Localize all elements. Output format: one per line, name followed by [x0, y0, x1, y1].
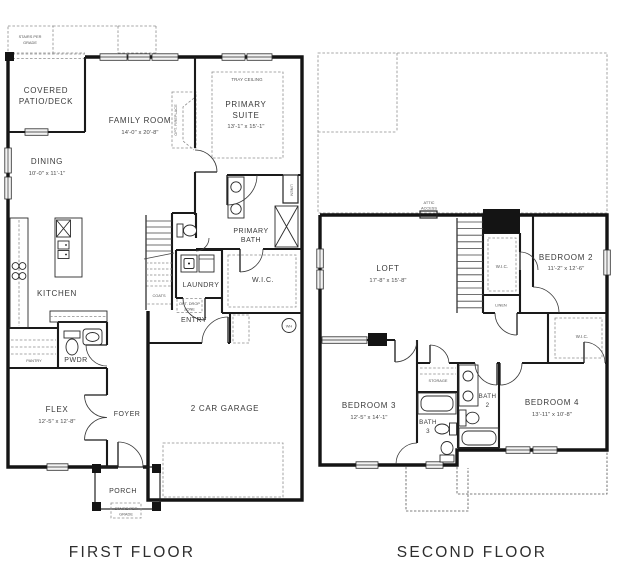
window [5, 177, 12, 199]
label-primary-suite: SUITE [232, 111, 259, 120]
label-loft-dims: 17'-8" x 15'-8" [369, 278, 406, 284]
toilet-icon [440, 442, 454, 463]
front-door [118, 442, 143, 467]
label-bath3: BATH [419, 419, 437, 426]
label-foyer: FOYER [114, 411, 141, 418]
floor-plan-sheet: STAIRS PER GRADE COVERED PATIO/DECK FAMI… [0, 0, 617, 582]
label-primary-suite: PRIMARY [225, 100, 266, 109]
sf-stairs [457, 218, 483, 313]
toilet-icon [459, 410, 479, 426]
door [520, 252, 538, 270]
label-bath2: 2 [486, 402, 490, 409]
window [222, 54, 245, 61]
label-opt-drop-zone: ZONE [184, 307, 195, 312]
label-wh: WH [286, 324, 293, 329]
label-storage: STORAGE [429, 378, 448, 383]
toilet-icon [64, 331, 80, 355]
window [100, 54, 127, 61]
label-garage: 2 CAR GARAGE [191, 404, 259, 413]
ff-bath-fixtures [64, 177, 298, 355]
label-entry: ENTRY [181, 317, 207, 324]
double-vanity [228, 177, 244, 218]
label-bedroom3: BEDROOM 3 [342, 401, 396, 410]
door [396, 443, 417, 464]
label-stairs-per-grade: GRADE [23, 40, 37, 45]
window [25, 129, 48, 136]
door [584, 342, 605, 363]
label-opt-drop-zone: OPT. DROP [179, 301, 200, 306]
label-kitchen: KITCHEN [37, 289, 77, 298]
first-floor-plan: STAIRS PER GRADE COVERED PATIO/DECK FAMI… [5, 26, 302, 561]
tub-icon [418, 393, 456, 414]
shower-icon [275, 206, 298, 247]
ff-labels: STAIRS PER GRADE COVERED PATIO/DECK FAMI… [19, 34, 295, 561]
label-attic-access: ACCESS [421, 206, 437, 211]
label-pwdr: PWDR [64, 357, 87, 364]
door [195, 150, 217, 172]
label-porch: PORCH [109, 488, 137, 495]
label-flex: FLEX [46, 405, 69, 414]
roof-outline [318, 53, 607, 213]
door [395, 340, 417, 362]
window [604, 250, 611, 275]
label-bedroom4-dims: 13'-11" x 10'-8" [532, 412, 572, 418]
first-floor-title: FIRST FLOOR [69, 544, 195, 561]
corner-post [5, 52, 14, 61]
toilet-icon [177, 224, 197, 237]
window [506, 447, 530, 454]
label-bath2: BATH [479, 393, 497, 400]
second-floor-plan: ATTIC ACCESS LOFT 17'-8" x 15'-8" W.I.C.… [317, 53, 611, 561]
label-tray-ceiling: TRAY CEILING [231, 77, 263, 82]
label-linen: LINEN [290, 184, 295, 196]
window [356, 462, 378, 469]
label-coats: COATS [152, 293, 166, 298]
label-wic-center: W.I.C. [496, 264, 509, 269]
label-loft: LOFT [376, 264, 399, 273]
sf-labels: ATTIC ACCESS LOFT 17'-8" x 15'-8" W.I.C.… [342, 200, 593, 561]
label-primary-bath: PRIMARY [233, 228, 268, 235]
window [152, 54, 178, 61]
door [533, 287, 559, 313]
label-stairs-per-grade: GRADE [119, 512, 133, 517]
label-wic-right: W.I.C. [576, 334, 589, 339]
overhang-outline [457, 452, 607, 494]
kitchen-island [55, 218, 82, 277]
tub-icon [459, 428, 499, 448]
label-bedroom3-dims: 12'-5" x 14'-1" [350, 415, 387, 421]
label-stairs-per-grade: STAIRS PER [19, 34, 42, 39]
double-door [85, 395, 108, 440]
label-bedroom2-dims: 11'-2" x 12'-6" [548, 266, 585, 272]
window [533, 447, 557, 454]
window [247, 54, 272, 61]
sink-icon [435, 423, 457, 435]
label-wic: W.I.C. [252, 277, 274, 284]
label-laundry: LAUNDRY [183, 282, 220, 289]
label-attic-access: ATTIC [424, 200, 435, 205]
overhang-outline [406, 467, 468, 511]
label-family-room: FAMILY ROOM [109, 116, 172, 125]
window [426, 462, 443, 469]
label-dining: DINING [31, 157, 63, 166]
ff-kitchen-fixtures [10, 218, 107, 328]
window [317, 249, 324, 268]
sink-icon [57, 220, 71, 237]
window [5, 148, 12, 173]
label-pantry: PANTRY [26, 358, 42, 363]
label-covered-patio: PATIO/DECK [19, 97, 73, 106]
label-opt-fireplace: OPT. FIREPLACE [173, 104, 178, 136]
label-flex-dims: 12'-5" x 12'-8" [38, 419, 75, 425]
door [500, 363, 522, 385]
door [430, 345, 449, 363]
label-family-room-dims: 14'-0" x 20'-8" [121, 130, 158, 136]
window [47, 464, 68, 471]
door [240, 249, 263, 272]
label-bath3: 3 [426, 428, 430, 435]
label-covered-patio: COVERED [24, 86, 68, 95]
label-primary-bath: BATH [241, 237, 261, 244]
label-bedroom2: BEDROOM 2 [539, 253, 593, 262]
window [322, 337, 367, 344]
window [317, 270, 324, 289]
sink-icon [83, 329, 102, 345]
floor-plan-drawing: STAIRS PER GRADE COVERED PATIO/DECK FAMI… [0, 0, 617, 582]
second-floor-title: SECOND FLOOR [397, 544, 547, 561]
label-bedroom4: BEDROOM 4 [525, 398, 579, 407]
washer-dryer [181, 255, 214, 272]
double-vanity [459, 365, 478, 406]
label-stairs-per-grade: STAIRS PER [115, 506, 138, 511]
door [86, 345, 107, 366]
label-primary-suite-dims: 13'-1" x 15'-1" [227, 124, 264, 130]
ff-doors [85, 150, 264, 467]
label-linen: LINEN [495, 303, 507, 308]
label-dining-dims: 10'-0" x 11'-1" [29, 171, 66, 177]
sf-windows [317, 249, 611, 468]
chase [483, 209, 520, 233]
window [128, 54, 150, 61]
door [495, 313, 517, 335]
